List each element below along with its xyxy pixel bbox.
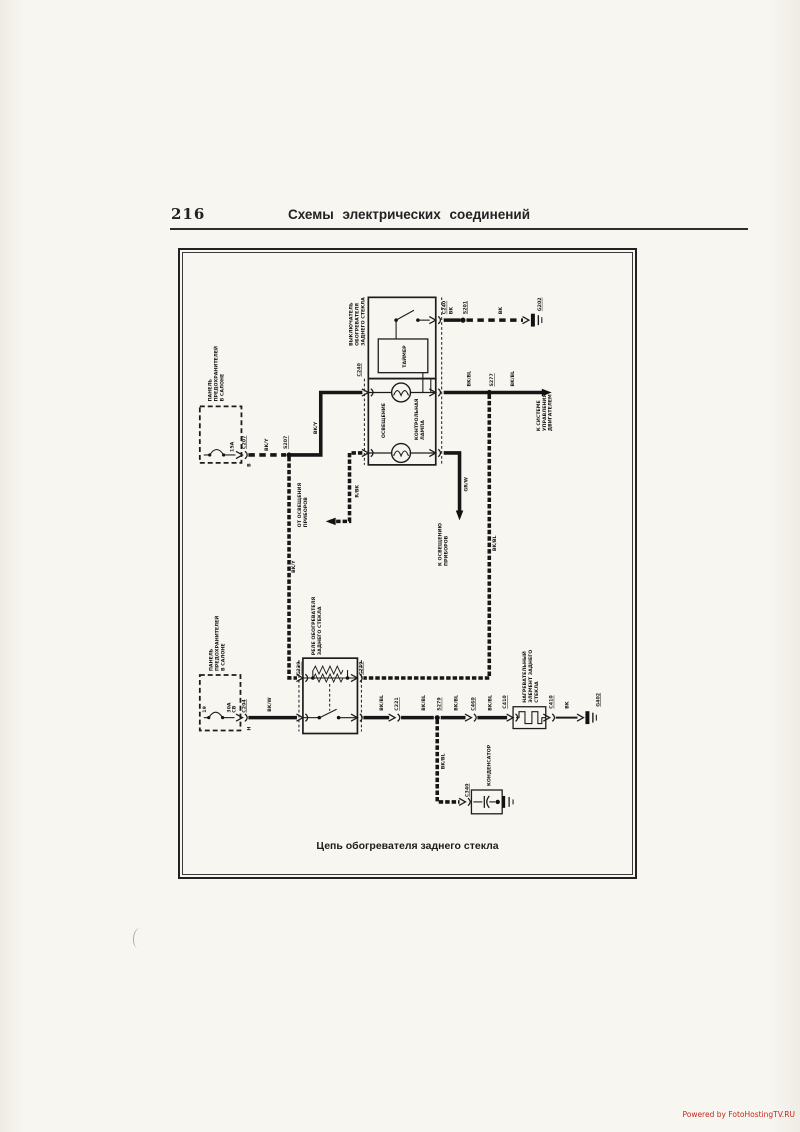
heater-grid-symbol [516, 712, 546, 724]
wire-label-bkbl: BK/BL [492, 535, 498, 551]
heater-name-3: СТЕКЛА [534, 681, 540, 703]
switch-ground-circuit: BK S201 BK G202 [444, 297, 543, 326]
switch-contact [416, 318, 420, 322]
junction-s279-dot [435, 715, 440, 720]
fuse-panel-label-1: ПАНЕЛЬ [209, 648, 215, 671]
wire-label-rbk: R/BK [354, 485, 360, 498]
lamp-illumination-label: ОСВЕЩЕНИЕ [381, 403, 387, 438]
connector-label-c204: C204 [241, 699, 247, 713]
connector-label-c239: C239 [358, 662, 364, 675]
diagram-caption: Цепь обогревателя заднего стекла [180, 840, 635, 852]
wire-label-bk: BK [498, 307, 504, 315]
fuse-panel-box [200, 675, 241, 731]
wire-label-bky: BK/Y [264, 438, 270, 451]
illumination-branches: R/BK ОТ ОСВЕЩЕНИЯ ПРИБОРОВ GR/W К ОСВЕЩЕ… [297, 453, 470, 566]
wire-label-bky: BK/Y [291, 560, 297, 573]
fuse-panel-label-3: В САЛОНЕ [221, 643, 227, 671]
connector-label-c240: C240 [356, 363, 362, 377]
connector-label-c460: C460 [470, 697, 476, 711]
header-rule [170, 228, 748, 230]
fuse-panel-box [200, 406, 242, 463]
wire-label-bk: BK [565, 701, 571, 709]
wire-bkbl-capacitor [437, 720, 459, 802]
dest-engine-1: К СИСТЕМЕ [536, 400, 542, 431]
lamp-control-label-2: ЛАМПА [420, 420, 426, 440]
wire-label-bkbl: BK/BL [510, 371, 516, 387]
capacitor-name: КОНДЕНСАТОР [486, 744, 492, 786]
wire-label-bkbl: BK/BL [421, 695, 427, 711]
wire-grw [444, 453, 460, 513]
dest-engine-3: ДВИГАТЕЛЕМ [548, 394, 554, 431]
connector-c204-symbol [236, 714, 247, 722]
capacitor-ground-symbol [502, 796, 505, 808]
ground-label-g402: G402 [595, 693, 601, 707]
dest-from-illum-2: ПРИБОРОВ [303, 497, 309, 528]
watermark-text: Powered by FotoHostingTV.RU [682, 1110, 795, 1119]
junction-s277-dot [487, 390, 492, 395]
scanned-page: 216 Схемы электрических соединений [0, 0, 800, 1132]
relay-box [303, 658, 358, 733]
switch-lever [396, 310, 414, 320]
dest-to-illum-1: К ОСВЕЩЕНИЮ [438, 523, 444, 566]
heater-element-line: BK/BL C221 BK/BL S279 BK/BL C460 BK/BL C… [363, 650, 601, 729]
switch-name-1: ВЫКЛЮЧАТЕЛЬ [348, 302, 354, 346]
fuse-panel-bottom: 19 30A CB ПАНЕЛЬ ПРЕДОХРАНИТЕЛЕЙ В САЛОН… [200, 616, 297, 731]
switch-name-2: ОБОГРЕВАТЕЛЯ [354, 303, 360, 346]
junction-label-s279: S279 [437, 697, 443, 710]
connector-label-c240: C240 [442, 300, 448, 314]
wire-label-bkbl: BK/BL [466, 371, 472, 387]
wire-label-bkbl: BK/BL [454, 695, 460, 711]
relay-name-1: РЕЛЕ ОБОГРЕВАТЕЛЯ [311, 596, 317, 655]
arrow-from-illumination [326, 518, 336, 526]
fuse-type-cb: CB [232, 705, 238, 712]
wire-label-bky: BK/Y [313, 421, 319, 434]
control-lamp-symbol [392, 383, 411, 402]
capacitor-plate-curved [487, 796, 489, 808]
junction-label-s277: S277 [489, 373, 495, 386]
dest-from-illum-1: ОТ ОСВЕЩЕНИЯ [297, 483, 303, 528]
dest-engine-2: УПРАВЛЕНИЯ [542, 394, 548, 432]
arrow-to-illumination [456, 510, 464, 520]
relay-coil-upper [313, 666, 343, 674]
connector-c460-symbol [465, 714, 476, 722]
heater-name-1: НАГРЕВАТЕЛЬНЫЙ [520, 651, 528, 703]
relay-contact-lever [320, 709, 337, 717]
connector-label-c207: C207 [241, 436, 247, 449]
connector-label-c221: C221 [394, 697, 400, 710]
fuse-panel-label-3: В САЛОНЕ [220, 374, 226, 402]
illumination-lamp-symbol [392, 444, 411, 463]
wiring-diagram: ВЫКЛЮЧАТЕЛЬ ОБОГРЕВАТЕЛЯ ЗАДНЕГО СТЕКЛА … [180, 250, 635, 877]
junction-label-s207: S207 [283, 436, 289, 449]
engine-control-feed: BK/BL S277 BK/BL BK/BL К СИСТЕМЕ УПРАВЛЕ… [363, 371, 553, 678]
connector-c340-symbol [459, 798, 470, 806]
capacitor-branch: BK/BL C340 КОНДЕНСАТОР [437, 720, 513, 814]
diagram-frame: ВЫКЛЮЧАТЕЛЬ ОБОГРЕВАТЕЛЯ ЗАДНЕГО СТЕКЛА … [178, 248, 637, 879]
connector-label-c340: C340 [464, 783, 470, 797]
heater-name-2: ЭЛЕМЕНТ ЗАДНЕГО [528, 650, 534, 703]
ground-label-g202: G202 [537, 297, 543, 311]
fuse-number-19: 19 [202, 706, 208, 713]
page-title: Схемы электрических соединений [170, 207, 648, 222]
breaker-symbol-30a [209, 712, 223, 717]
switch-name-3: ЗАДНЕГО СТЕКЛА [360, 297, 366, 346]
ground-g402-symbol [577, 711, 596, 724]
lamp-control-label-1: КОНТРОЛЬНАЯ [414, 398, 420, 440]
connector-label-c410: C410 [502, 695, 508, 709]
wire-label-bk: BK [449, 307, 455, 315]
timer-label: ТАЙМЕР [400, 345, 408, 368]
connector-c221-symbol [389, 714, 400, 722]
s207-wiring: BK/Y S207 BK/Y BK/Y [248, 393, 362, 678]
fuse-panel-top: 15A ПАНЕЛЬ ПРЕДОХРАНИТЕЛЕЙ В САЛОНЕ C207… [200, 346, 253, 467]
junction-s201-dot [460, 318, 465, 323]
connector-symbol [429, 316, 440, 324]
fuse-rating-15a: 15A [230, 441, 236, 452]
wire-label-bkbl: BK/BL [441, 754, 447, 770]
pen-mark-artifact [132, 928, 144, 949]
defogger-switch-assembly: ВЫКЛЮЧАТЕЛЬ ОБОГРЕВАТЕЛЯ ЗАДНЕГО СТЕКЛА … [348, 297, 447, 465]
dest-to-illum-2: ПРИБОРОВ [444, 535, 450, 566]
junction-label-s201: S201 [462, 301, 468, 314]
relay-name-2: ЗАДНЕГО СТЕКЛА [317, 606, 323, 655]
connector-label-c410: C410 [549, 695, 555, 709]
connector-label-c239: C239 [296, 662, 302, 675]
wire-bky-to-switch [289, 393, 362, 455]
wire-label-bkw: BK/W [267, 697, 273, 712]
fuse-symbol-15a [210, 450, 224, 455]
switch-contact [394, 318, 398, 322]
pin-label-h: H [246, 727, 252, 731]
ground-g202-symbol [522, 314, 541, 327]
wire-label-bkbl: BK/BL [487, 695, 493, 711]
defogger-relay: РЕЛЕ ОБОГРЕВАТЕЛЯ ЗАДНЕГО СТЕКЛА C239 C2… [296, 596, 364, 733]
wire-label-bkbl: BK/BL [379, 695, 385, 711]
fuse-panel-label-1: ПАНЕЛЬ [208, 379, 214, 402]
wire-label-grw: GR/W [463, 476, 469, 491]
pin-label-b: B [246, 463, 252, 467]
